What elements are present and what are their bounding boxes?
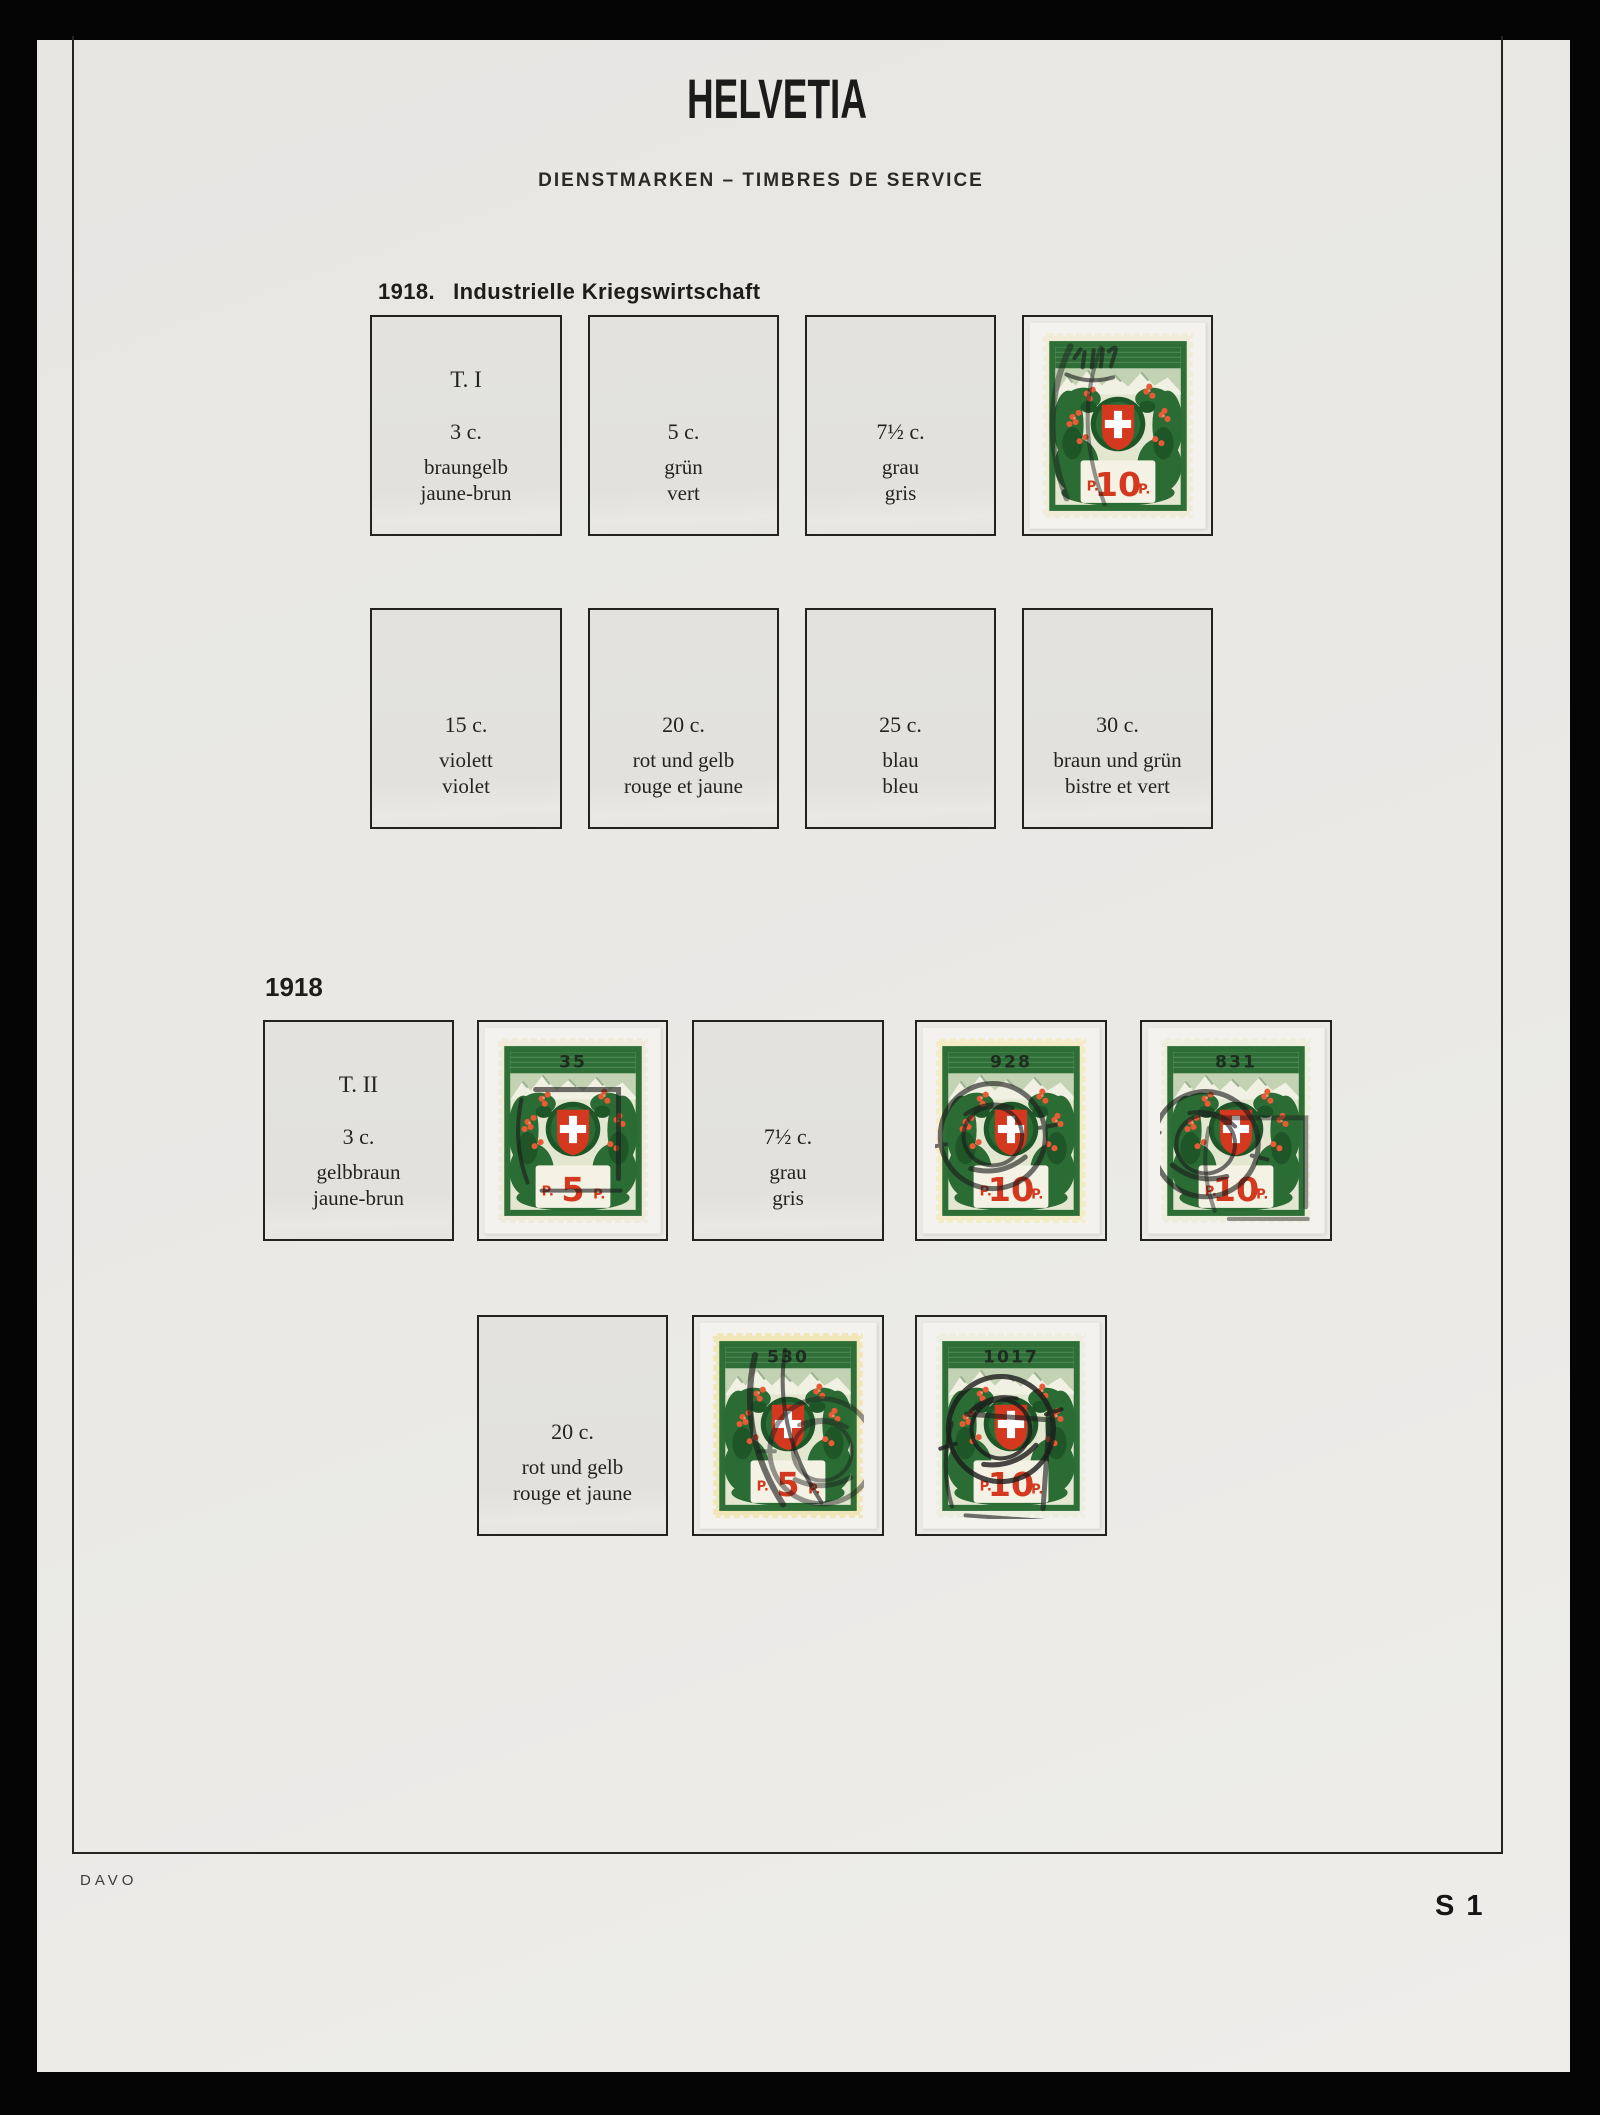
stamp-10c-used: 1017 P. 10 P.	[935, 1332, 1087, 1519]
stamp-cell-10c-type1: P. 10 P.	[1022, 315, 1213, 536]
color-french: rouge et jaune	[590, 774, 777, 799]
color-german: grau	[807, 455, 994, 480]
page-title: HELVETIA	[579, 66, 975, 131]
type-line: T. II	[265, 1072, 452, 1098]
stamp-mount: 928 P. 10 P.	[922, 1027, 1100, 1234]
color-german: braun und grün	[1024, 748, 1211, 773]
color-german: rot und gelb	[479, 1455, 666, 1480]
color-french: bistre et vert	[1024, 774, 1211, 799]
value-line: 25 c.	[807, 712, 994, 738]
stamp-cell-5c-control-35: 35 P. 5 P.	[477, 1020, 668, 1241]
svg-text:P.: P.	[1256, 1188, 1268, 1203]
value-line: 7½ c.	[807, 419, 994, 445]
label-box-30c: 30 c. braun und grün bistre et vert	[1022, 608, 1213, 829]
label-box-15c: 15 c. violett violet	[370, 608, 562, 829]
color-german: violett	[372, 748, 560, 773]
svg-text:P.: P.	[1138, 483, 1150, 498]
stamp-mount: 35 P. 5 P.	[484, 1027, 661, 1234]
type-line: T. I	[372, 367, 560, 393]
value-line: 15 c.	[372, 712, 560, 738]
label-box-25c: 25 c. blau bleu	[805, 608, 996, 829]
color-french: gris	[807, 481, 994, 506]
svg-text:P.: P.	[1031, 1188, 1043, 1203]
page-border-frame	[72, 36, 1503, 1854]
label-box-7half-c-type2: 7½ c. grau gris	[692, 1020, 884, 1241]
value-line: 20 c.	[479, 1419, 666, 1445]
stamp-mount: P. 10 P.	[1029, 322, 1206, 529]
album-page-photo: HELVETIA DIENSTMARKEN – TIMBRES DE SERVI…	[0, 0, 1600, 2115]
control-number: 35	[559, 1052, 587, 1072]
stamp-cell-10c-control-928: 928 P. 10 P.	[915, 1020, 1107, 1241]
label-box-7half-c: 7½ c. grau gris	[805, 315, 996, 536]
color-french: violet	[372, 774, 560, 799]
value-line: 20 c.	[590, 712, 777, 738]
color-german: blau	[807, 748, 994, 773]
color-french: jaune-brun	[372, 481, 560, 506]
color-german: braungelb	[372, 455, 560, 480]
value-line: 30 c.	[1024, 712, 1211, 738]
color-german: grün	[590, 455, 777, 480]
color-german: rot und gelb	[590, 748, 777, 773]
control-number: 1017	[983, 1347, 1039, 1367]
label-box-20c: 20 c. rot und gelb rouge et jaune	[588, 608, 779, 829]
color-french: vert	[590, 481, 777, 506]
color-german: grau	[694, 1160, 882, 1185]
stamp-5c-used: 35 P. 5 P.	[497, 1037, 649, 1224]
section-year: 1918.	[378, 279, 435, 304]
stamp-mount: 530 P. 5 P.	[699, 1322, 877, 1529]
label-box-3c-type2: T. II 3 c. gelbbraun jaune-brun	[263, 1020, 454, 1241]
value-line: 3 c.	[265, 1124, 452, 1150]
color-french: bleu	[807, 774, 994, 799]
control-number: 831	[1215, 1052, 1257, 1072]
stamp-10c-used: 831 P. 10 P.	[1160, 1037, 1312, 1224]
publisher-label: DAVO	[80, 1872, 137, 1889]
value-line: 3 c.	[372, 419, 560, 445]
control-number: 530	[767, 1347, 809, 1367]
color-french: rouge et jaune	[479, 1481, 666, 1506]
stamp-mount: 1017 P. 10 P.	[922, 1322, 1100, 1529]
label-box-20c-type2: 20 c. rot und gelb rouge et jaune	[477, 1315, 668, 1536]
stamp-5c-used: 530 P. 5 P.	[712, 1332, 864, 1519]
stamp-cell-5c-control-530: 530 P. 5 P.	[692, 1315, 884, 1536]
svg-text:10: 10	[988, 1465, 1034, 1504]
page-number: S 1	[1435, 1890, 1485, 1923]
page-subtitle: DIENSTMARKEN – TIMBRES DE SERVICE	[461, 170, 1061, 192]
stamp-10c-used: P. 10 P.	[1042, 332, 1194, 519]
album-page: HELVETIA DIENSTMARKEN – TIMBRES DE SERVI…	[37, 40, 1570, 2072]
color-french: gris	[694, 1186, 882, 1211]
section-heading-1918-type2: 1918	[265, 972, 323, 1003]
stamp-cell-10c-control-831: 831 P. 10 P.	[1140, 1020, 1332, 1241]
color-german: gelbbraun	[265, 1160, 452, 1185]
section-name: Industrielle Kriegswirtschaft	[453, 279, 760, 304]
color-french: jaune-brun	[265, 1186, 452, 1211]
value-line: 5 c.	[590, 419, 777, 445]
stamp-cell-10c-control-1017: 1017 P. 10 P.	[915, 1315, 1107, 1536]
label-box-3c-type1: T. I 3 c. braungelb jaune-brun	[370, 315, 562, 536]
stamp-10c-used: 928 P. 10 P.	[935, 1037, 1087, 1224]
value-line: 7½ c.	[694, 1124, 882, 1150]
label-box-5c: 5 c. grün vert	[588, 315, 779, 536]
section-heading-1918: 1918.Industrielle Kriegswirtschaft	[378, 279, 761, 305]
control-number: 928	[990, 1052, 1032, 1072]
stamp-mount: 831 P. 10 P.	[1147, 1027, 1325, 1234]
